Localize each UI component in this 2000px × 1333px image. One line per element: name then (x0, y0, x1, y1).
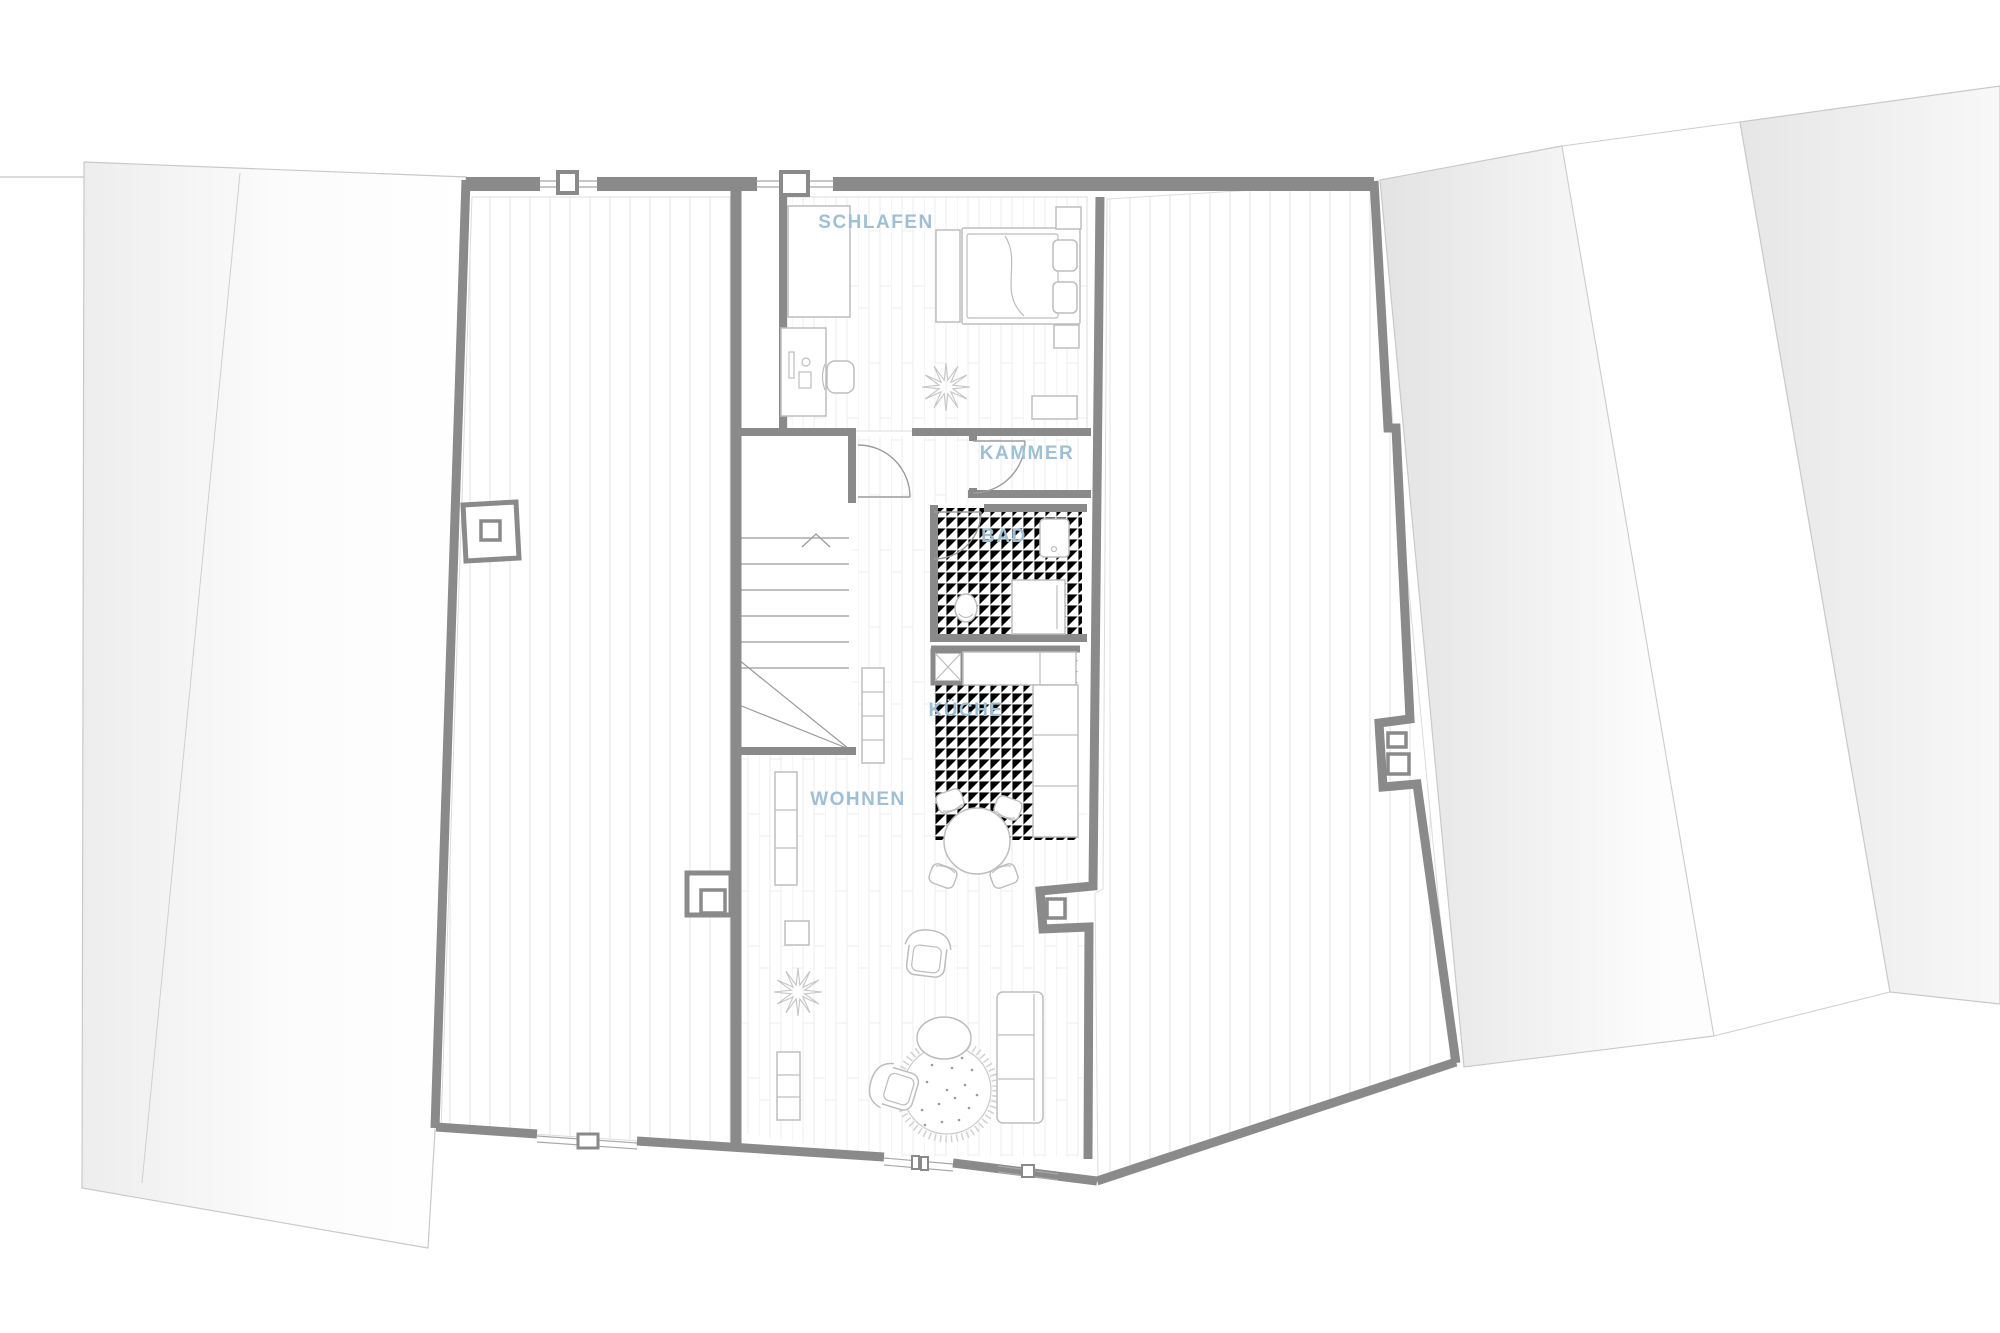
kitchen-counter-right (1033, 685, 1078, 837)
nightstand-top (1056, 207, 1081, 229)
side-table (785, 921, 809, 945)
bench (936, 230, 960, 322)
pilaster-mid-wall (687, 873, 731, 915)
room-label-kammer: KAMMER (980, 443, 1075, 464)
nightstand-bottom (1054, 325, 1079, 348)
room-label-bad: BAD (981, 526, 1027, 547)
toilet (955, 594, 977, 622)
washbasin (1040, 519, 1069, 557)
pilaster-left-wall (463, 502, 519, 561)
column-wohnen-east (1047, 899, 1065, 918)
neighbor-building-left (82, 162, 466, 1248)
column-right-wall-1 (1388, 733, 1406, 747)
shower (1012, 580, 1065, 634)
neighbor-building-right (1380, 86, 2000, 1067)
floor-plan-canvas: SCHLAFEN KAMMER BAD KÜCHE WOHNEN (0, 0, 2000, 1333)
stair-shelf (862, 668, 884, 763)
desk-chair (823, 361, 855, 393)
shaft-box (933, 651, 963, 683)
column-right-wall-2 (1388, 754, 1409, 774)
room-label-schlafen: SCHLAFEN (818, 212, 933, 233)
room-label-wohnen: WOHNEN (810, 789, 906, 810)
window-top-2 (757, 172, 833, 195)
schlafen-shelf (1032, 396, 1077, 419)
pouf (917, 1017, 971, 1059)
sofa (997, 992, 1043, 1123)
wohnen-shelf-2 (777, 1052, 800, 1120)
floor-stair-void (739, 434, 852, 751)
floor-corridor (856, 436, 970, 503)
desk (781, 328, 826, 416)
window-top-1 (540, 172, 597, 194)
room-label-kueche: KÜCHE (928, 700, 1003, 721)
kitchen-counter-top (963, 652, 1076, 685)
floor-left-hall (441, 197, 731, 1147)
floor-plan-drawing: SCHLAFEN KAMMER BAD KÜCHE WOHNEN (0, 0, 2000, 1333)
double-bed (962, 228, 1080, 324)
wohnen-shelf-1 (775, 772, 797, 885)
